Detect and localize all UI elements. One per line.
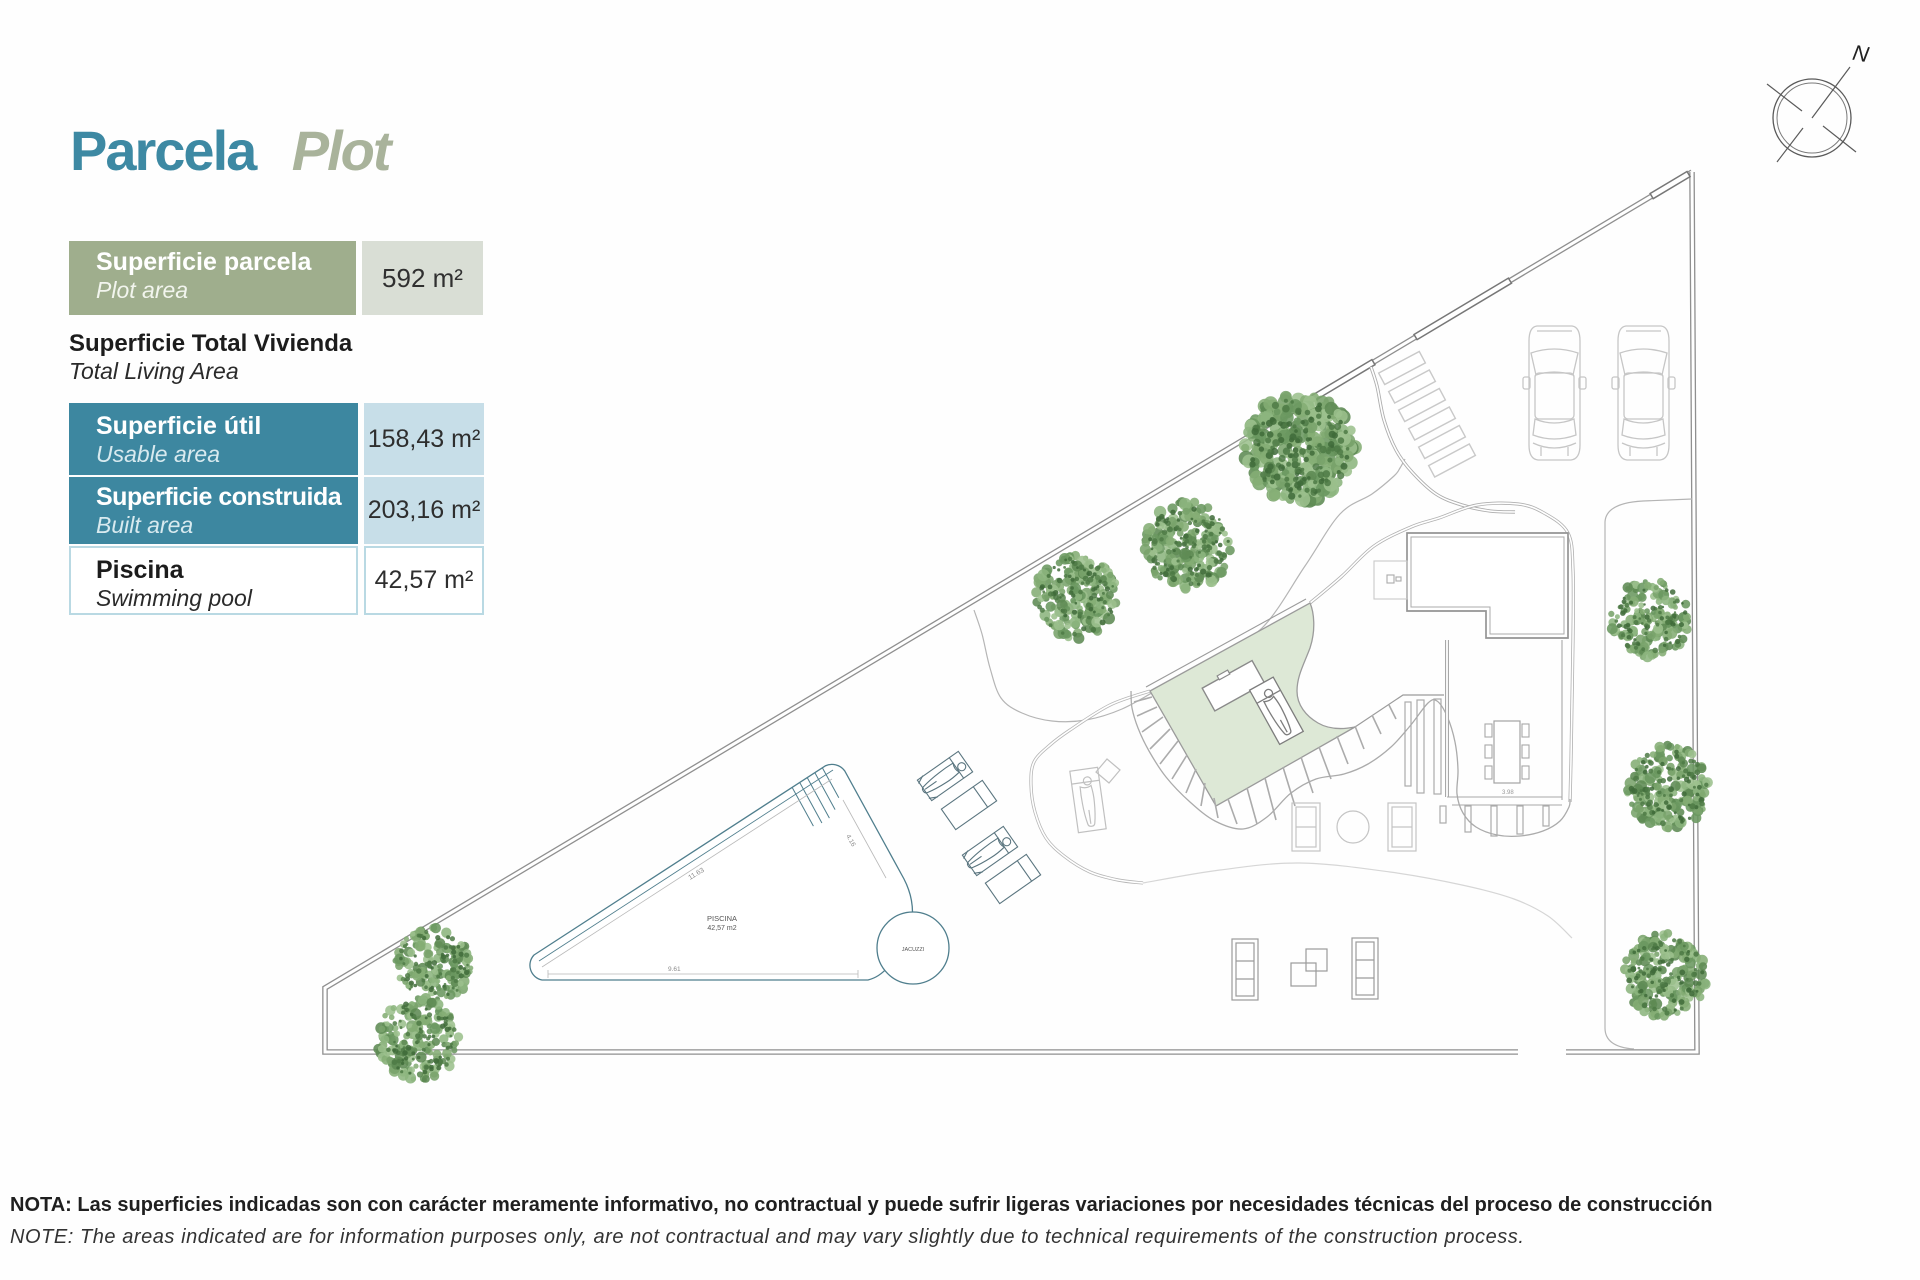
svg-text:N: N xyxy=(1851,40,1871,67)
svg-text:JACUZZI: JACUZZI xyxy=(902,947,925,953)
svg-text:42,57 m2: 42,57 m2 xyxy=(707,925,736,932)
svg-text:PISCINA: PISCINA xyxy=(707,914,737,923)
svg-text:3.98: 3.98 xyxy=(1502,790,1514,796)
svg-text:9.61: 9.61 xyxy=(668,966,681,973)
